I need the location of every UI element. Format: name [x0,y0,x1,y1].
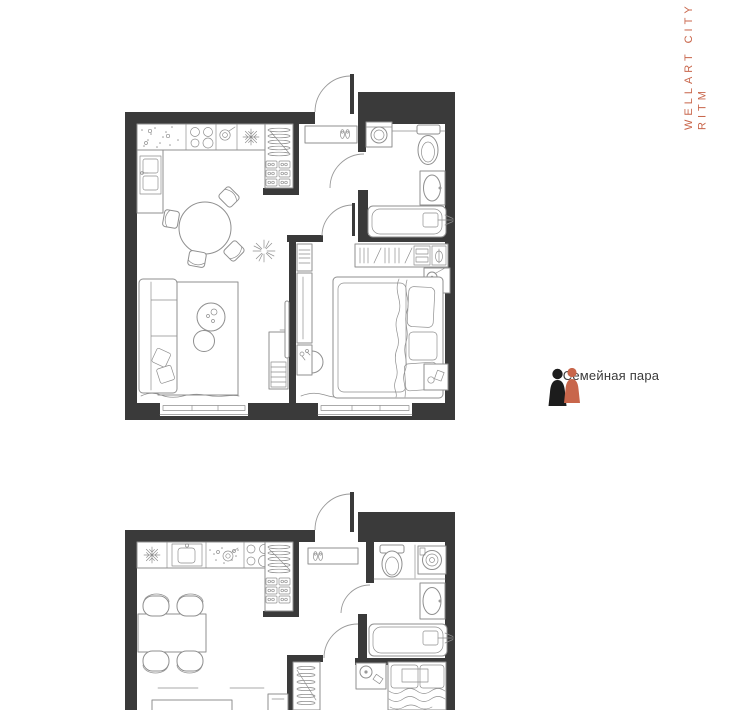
chair [218,186,241,209]
nightstand-lamp-icon [356,663,386,689]
floor-plan-top [125,74,455,420]
bedroom-door-arc [324,624,358,658]
kitchen-area [137,124,293,268]
tv-unit-partial [268,694,288,710]
entry-door [315,492,354,532]
bedroom-door [322,203,355,236]
bedside-table [424,364,448,390]
toilet-icon [380,545,404,577]
coffee-tables [194,303,226,352]
floor-plans-canvas [0,0,735,710]
washing-machine-icon [366,122,392,147]
chair [162,209,180,228]
page: WELLART CITY RITM Семейная пара [0,0,735,710]
hallway [305,126,357,143]
divider-console [297,244,323,375]
brand-line-2: RITM [697,30,711,130]
washbasin-icon [420,583,445,619]
wardrobe-hangers [293,662,320,710]
round-dining-table [179,202,231,254]
floor-plan-bottom [125,492,455,710]
chair [177,651,203,673]
fridge-snowflake-icon [144,547,160,563]
entry-door [315,74,354,114]
washbasin-icon [420,171,445,205]
kitchen-area [137,542,293,710]
bathroom [366,122,454,237]
plant-icon [253,240,275,262]
stool [312,351,323,373]
wardrobe-hangers [355,244,448,267]
fridge-snowflake-icon [243,129,259,145]
window-bedroom [318,403,412,416]
toilet-icon [417,125,440,165]
tv-icon [285,301,289,358]
window-living [160,403,248,416]
shoe-bench [308,548,358,564]
washing-machine-icon [418,546,446,574]
bathtub-icon [369,624,454,656]
chair [143,651,169,673]
brand-line-1: WELLART CITY [683,30,697,130]
living-area [139,279,289,395]
bathroom-door-arc [330,154,364,188]
hall-closet-hangers [265,124,293,188]
couple-icon [548,368,582,408]
bathroom [369,545,454,656]
brand-vertical-text: WELLART CITY RITM [683,30,710,130]
bedroom-partial [356,662,446,710]
double-bed-partial [388,662,446,710]
chair [187,250,206,268]
chair [143,594,169,616]
sofa [139,279,177,393]
bathtub-icon [368,206,454,237]
dining-table [138,614,206,652]
legend: Семейная пара [548,368,674,383]
chair [177,594,203,616]
hallway [308,548,358,564]
desk-partial [152,700,232,710]
bathroom-door-arc [341,585,370,613]
shoe-bench [305,126,357,143]
hall-closet-hangers [265,542,293,611]
tv-console [269,301,289,389]
bedroom [297,244,450,398]
